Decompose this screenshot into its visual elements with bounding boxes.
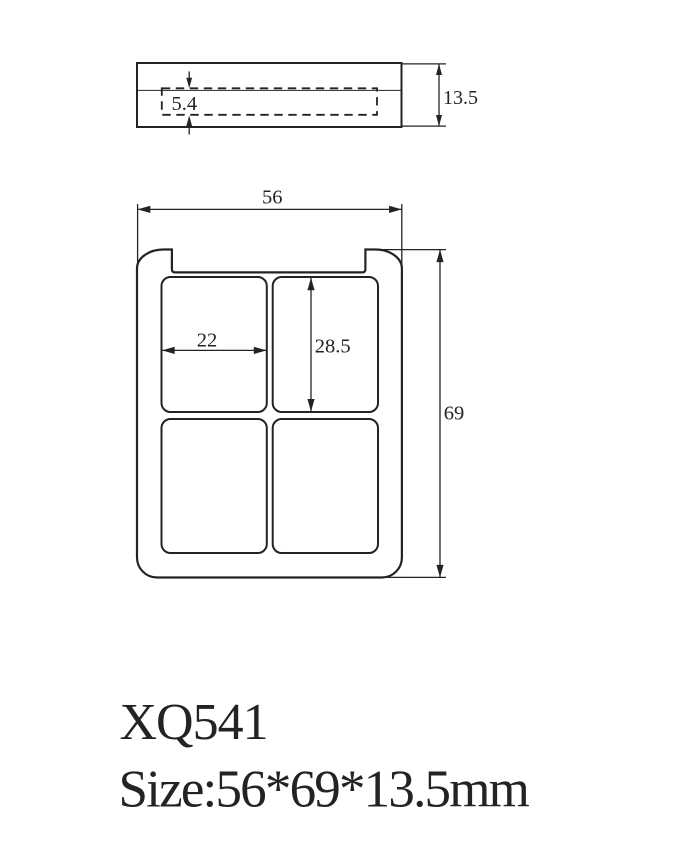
svg-text:22: 22 — [197, 329, 218, 351]
svg-text:Size:56*69*13.5mm: Size:56*69*13.5mm — [119, 760, 530, 818]
svg-text:69: 69 — [444, 403, 465, 425]
svg-text:28.5: 28.5 — [315, 335, 351, 357]
svg-text:13.5: 13.5 — [443, 87, 478, 109]
svg-text:XQ541: XQ541 — [120, 694, 268, 751]
svg-text:56: 56 — [262, 187, 283, 209]
svg-text:5.4: 5.4 — [171, 93, 197, 115]
